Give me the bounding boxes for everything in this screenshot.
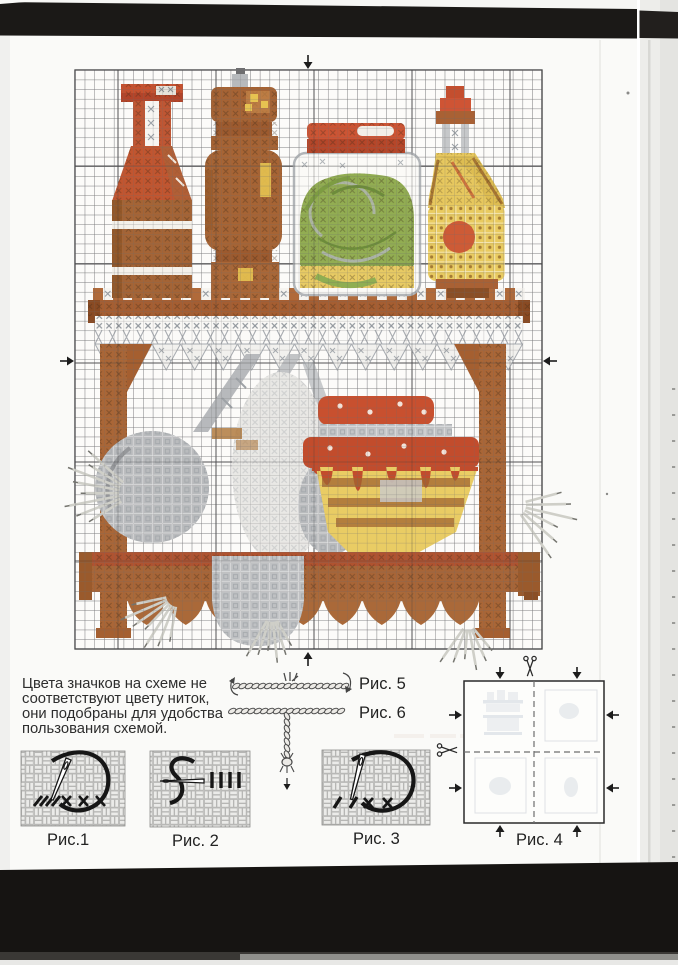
svg-text:Рис. 2: Рис. 2: [172, 832, 219, 850]
svg-text:Рис. 3: Рис. 3: [353, 830, 400, 848]
svg-text:Рис. 5: Рис. 5: [359, 675, 406, 693]
svg-text:Рис. 4: Рис. 4: [516, 831, 563, 849]
svg-text:пользования схемой.: пользования схемой.: [22, 721, 167, 737]
svg-text:Цвета значков на схеме не: Цвета значков на схеме не: [22, 676, 207, 692]
svg-text:соответствуют цвету ниток,: соответствуют цвету ниток,: [22, 691, 210, 707]
svg-text:Рис. 6: Рис. 6: [359, 704, 406, 722]
svg-text:они подобраны для удобства: они подобраны для удобства: [22, 706, 224, 722]
svg-text:Рис.1: Рис.1: [47, 831, 89, 849]
